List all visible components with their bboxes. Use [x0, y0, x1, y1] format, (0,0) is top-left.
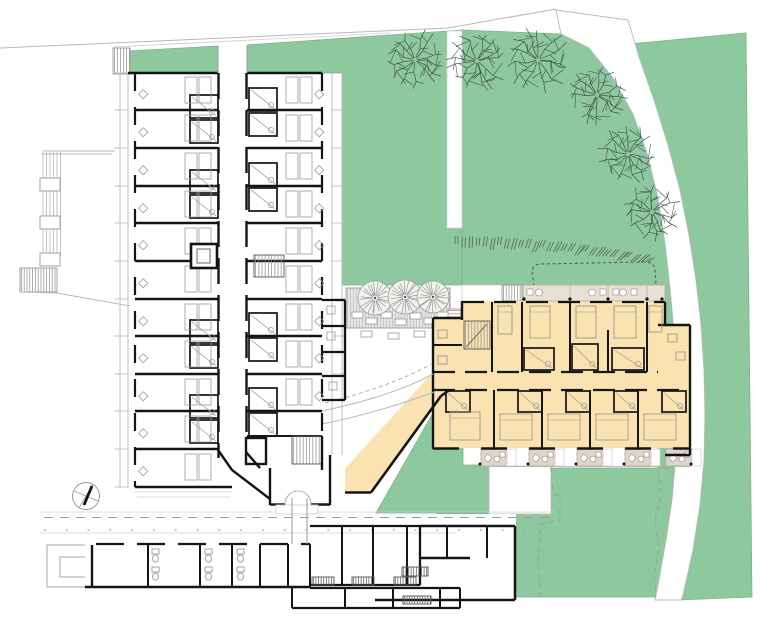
path-strip-north: [447, 31, 462, 228]
old-bathroom-east-wc-2: [268, 177, 273, 182]
old-beds-west-d-6: [139, 317, 148, 326]
old-bathroom-west-x-2: [192, 172, 216, 191]
northwest-stair-bg: [113, 48, 130, 74]
old-south-walls-0: [232, 470, 270, 499]
dock-bracket: [47, 545, 85, 587]
courtyard-tree-c-2: [432, 296, 434, 298]
old-bathroom-east-x-5: [251, 340, 275, 359]
wing-a-fixtures-b-1: [153, 573, 159, 580]
patio-columns-4: [690, 463, 693, 466]
old-east-wing-furniture-2: [329, 382, 337, 390]
stair-landing: [462, 285, 502, 302]
old-bathroom-east-wc-1: [268, 127, 273, 132]
patio-row-c-1: [542, 456, 548, 462]
old-beds-west-2-1: [199, 153, 211, 179]
patio-row-sq-0: [500, 452, 505, 457]
terrace-columns-1: [568, 297, 571, 300]
old-bathroom-west-wc-3: [209, 209, 214, 214]
old-beds-west-d-9: [139, 429, 148, 438]
old-elevator-1: [191, 244, 217, 268]
old-bathroom-east-wc-3: [268, 202, 273, 207]
old-bathroom-west-x-6: [192, 397, 216, 416]
terrace-columns-3: [645, 297, 648, 300]
terrace-furniture-squares-1: [600, 289, 606, 295]
old-bathroom-west-wc-7: [209, 434, 214, 439]
old-east-wing-furniture-0: [327, 306, 335, 314]
courtyard-tree-c-0: [374, 297, 376, 299]
old-bathroom-west-x-1: [192, 122, 216, 141]
patio-row-c-0: [494, 456, 500, 462]
wing-a-fixtures-t-3: [205, 567, 212, 572]
courtyard-benches-4: [410, 313, 421, 319]
old-beds-west-0-1: [199, 77, 211, 103]
old-beds-east-1-1: [300, 115, 312, 141]
old-beds-west-d-1: [139, 128, 148, 137]
new-wing-corridor: [433, 372, 690, 390]
old-beds-west-1-0: [185, 115, 197, 141]
old-beds-west-5-0: [185, 266, 197, 292]
wing-a-fixtures-t-4: [237, 549, 244, 554]
old-bathroom-east-wc-5: [268, 352, 273, 357]
old-beds-east-4-1: [300, 228, 312, 254]
wing-a-fixtures-t-5: [237, 567, 244, 572]
wing-a-fixtures-t-1: [152, 567, 159, 572]
old-bathroom-east-x-0: [251, 90, 275, 109]
wing-b-windows-0-frame: [312, 577, 334, 585]
old-beds-west-d-4: [139, 241, 148, 250]
old-bathroom-west-x-4: [192, 322, 216, 341]
wing-a-fixtures-t-2: [205, 549, 212, 554]
wing-a-fixtures-b-4: [238, 555, 244, 562]
old-bathroom-east-x-4: [251, 315, 275, 334]
architectural-site-plan: [0, 0, 780, 626]
old-bathroom-east-wc-0: [268, 102, 273, 107]
old-bathroom-west-x-7: [192, 422, 216, 441]
patio-row-c-3: [638, 456, 644, 462]
old-south-walls-1: [218, 450, 232, 470]
terrace-furniture-circles-2: [620, 289, 627, 296]
old-beds-west-8-1: [199, 379, 211, 405]
old-beds-west-d-5: [139, 279, 148, 288]
terrace-furniture-squares-2: [613, 289, 619, 295]
courtyard-benches-7: [361, 331, 372, 337]
terrace-columns-2: [606, 297, 609, 300]
old-beds-east-2-1: [300, 153, 312, 179]
old-beds-east-6-0: [286, 304, 298, 330]
old-beds-west-5-1: [199, 266, 211, 292]
old-bathroom-east-x-7: [251, 415, 275, 434]
old-bathroom-east-wc-4: [268, 327, 273, 332]
patio-row-sq-1: [548, 452, 553, 457]
old-beds-east-5-0: [286, 266, 298, 292]
neighbor-boxes-0: [40, 178, 60, 191]
neighbor-boxes-1: [40, 216, 60, 229]
old-beds-west-2-0: [185, 153, 197, 179]
old-beds-east-1-0: [286, 115, 298, 141]
old-bathroom-east-wc-6: [268, 402, 273, 407]
old-beds-west-6-1: [199, 304, 211, 330]
old-beds-east-8-1: [300, 379, 312, 405]
old-bathroom-west-x-3: [192, 197, 216, 216]
patio-columns-0: [479, 463, 482, 466]
old-beds-east-7-0: [286, 341, 298, 367]
new-wing-south-row: [433, 390, 690, 448]
wing-b-windows-1-frame: [352, 577, 374, 585]
old-beds-west-10-1: [199, 454, 211, 480]
patio-row-sq-3: [644, 452, 649, 457]
courtyard-benches-8: [388, 333, 399, 339]
old-bathroom-east-x-2: [251, 165, 275, 184]
terrace-furniture-circles-1: [589, 289, 596, 296]
terrace-furniture-circles-0: [536, 289, 543, 296]
old-beds-west-d-3: [139, 204, 148, 213]
old-beds-east-5-1: [300, 266, 312, 292]
patio-columns-3: [623, 463, 626, 466]
wing-a-fixtures-b-0: [153, 555, 159, 562]
old-beds-west-d-8: [139, 392, 148, 401]
old-beds-east-3-0: [286, 191, 298, 217]
old-beds-east-0-0: [286, 77, 298, 103]
old-beds-west-6-0: [185, 304, 197, 330]
old-beds-east-2-0: [286, 153, 298, 179]
patio-row-c-4: [679, 456, 685, 462]
patio-columns-2: [575, 463, 578, 466]
terrace-columns-0: [522, 297, 525, 300]
patio-row-sq-2: [596, 452, 601, 457]
site-plan-svg: [0, 0, 780, 626]
old-elevator-2: [246, 438, 266, 464]
old-beds-west-10-0: [185, 454, 197, 480]
old-bathroom-east-x-1: [251, 115, 275, 134]
entrance-canopy: [276, 505, 318, 514]
neighbor-boxes-2: [40, 253, 60, 266]
terrace-furniture-squares-0: [527, 289, 533, 295]
patio-row-step-3: [651, 449, 660, 466]
old-beds-west-d-10: [139, 467, 148, 476]
courtyard-benches-3: [395, 319, 406, 325]
old-bathroom-west-x-5: [192, 347, 216, 366]
courtyard-benches-9: [414, 331, 425, 337]
old-bathroom-east-x-6: [251, 390, 275, 409]
wing-a-fixtures-b-5: [238, 573, 244, 580]
old-bathroom-east-wc-7: [268, 427, 273, 432]
old-beds-east-7-1: [300, 341, 312, 367]
patio-row-step-1: [555, 449, 564, 466]
patio-row-c-2: [590, 456, 596, 462]
terrace-furniture-squares-3: [631, 289, 637, 295]
old-bathroom-west-wc-5: [209, 359, 214, 364]
old-beds-east-d-2: [315, 166, 324, 175]
old-bathroom-west-x-0: [192, 97, 216, 116]
courtyard-benches-0: [352, 312, 363, 318]
old-beds-east-d-1: [315, 128, 324, 137]
terrace-columns-4: [660, 297, 663, 300]
old-bathroom-west-wc-1: [209, 134, 214, 139]
old-beds-west-8-0: [185, 379, 197, 405]
old-beds-west-d-7: [139, 354, 148, 363]
old-beds-east-6-1: [300, 304, 312, 330]
lawn-north-b: [247, 30, 462, 285]
old-beds-east-4-0: [286, 228, 298, 254]
old-beds-east-0-1: [300, 77, 312, 103]
neighbor-boundary: [20, 292, 130, 306]
patio-row-step-2: [603, 449, 612, 466]
patio-columns-1: [527, 463, 530, 466]
courtyard-benches-1: [366, 318, 377, 324]
wing-a-fixtures-b-2: [206, 555, 212, 562]
patio-row-step-0: [507, 449, 516, 466]
wing-a-fixtures-t-0: [152, 549, 159, 554]
courtyard-tree-c-1: [404, 296, 406, 298]
old-beds-west-d-2: [139, 166, 148, 175]
patio-row-step-4: [692, 449, 701, 466]
old-beds-east-d-0: [315, 90, 324, 99]
old-beds-east-3-1: [300, 191, 312, 217]
patio-court-white: [489, 466, 551, 514]
old-beds-west-d-0: [139, 90, 148, 99]
old-bathroom-east-x-3: [251, 190, 275, 209]
old-beds-east-8-0: [286, 379, 298, 405]
lawn-north-a: [128, 46, 218, 73]
wing-a-fixtures-b-3: [206, 573, 212, 580]
